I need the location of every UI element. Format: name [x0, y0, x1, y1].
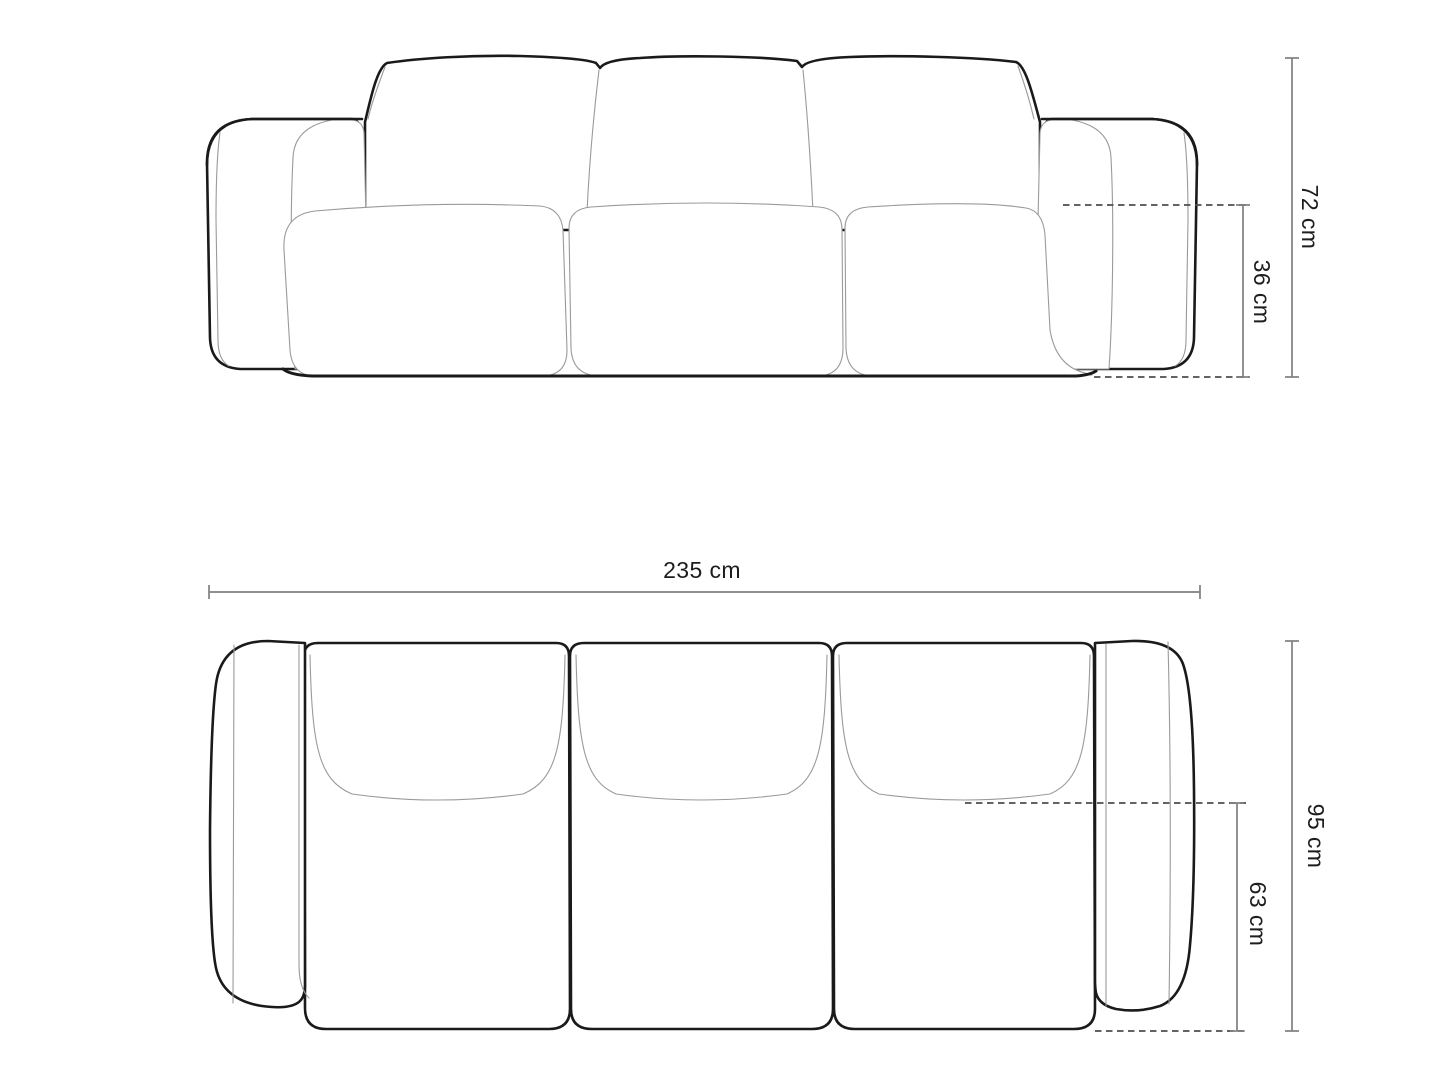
top-right-arm-outline: [1095, 641, 1194, 1010]
front-seat-cushion-2: [569, 203, 843, 376]
top-total-depth-dimension: 95 cm: [1285, 641, 1329, 1031]
top-left-arm-outline: [210, 641, 305, 1007]
top-module-2: [570, 643, 833, 1029]
top-total-width-label: 235 cm: [663, 557, 741, 583]
top-total-width-dimension: 235 cm: [209, 557, 1200, 599]
front-total-height-label: 72 cm: [1297, 185, 1323, 250]
top-module-3: [833, 643, 1095, 1029]
top-seat-depth-label: 63 cm: [1245, 882, 1271, 947]
top-module-1: [304, 643, 570, 1029]
diagram-canvas: 36 cm 72 cm 235 cm: [0, 0, 1454, 1090]
front-seat-height-dimension: 36 cm: [1236, 205, 1275, 377]
top-total-depth-label: 95 cm: [1303, 804, 1329, 869]
front-seat-cushion-1: [284, 204, 567, 376]
sofa-dimension-diagram: 36 cm 72 cm 235 cm: [0, 0, 1454, 1090]
front-total-height-dimension: 72 cm: [1285, 58, 1323, 377]
front-seat-height-label: 36 cm: [1249, 260, 1275, 325]
top-seat-depth-dimension: 63 cm: [1230, 803, 1271, 1031]
top-view-drawing: [210, 641, 1194, 1029]
front-view-drawing: [207, 56, 1197, 376]
